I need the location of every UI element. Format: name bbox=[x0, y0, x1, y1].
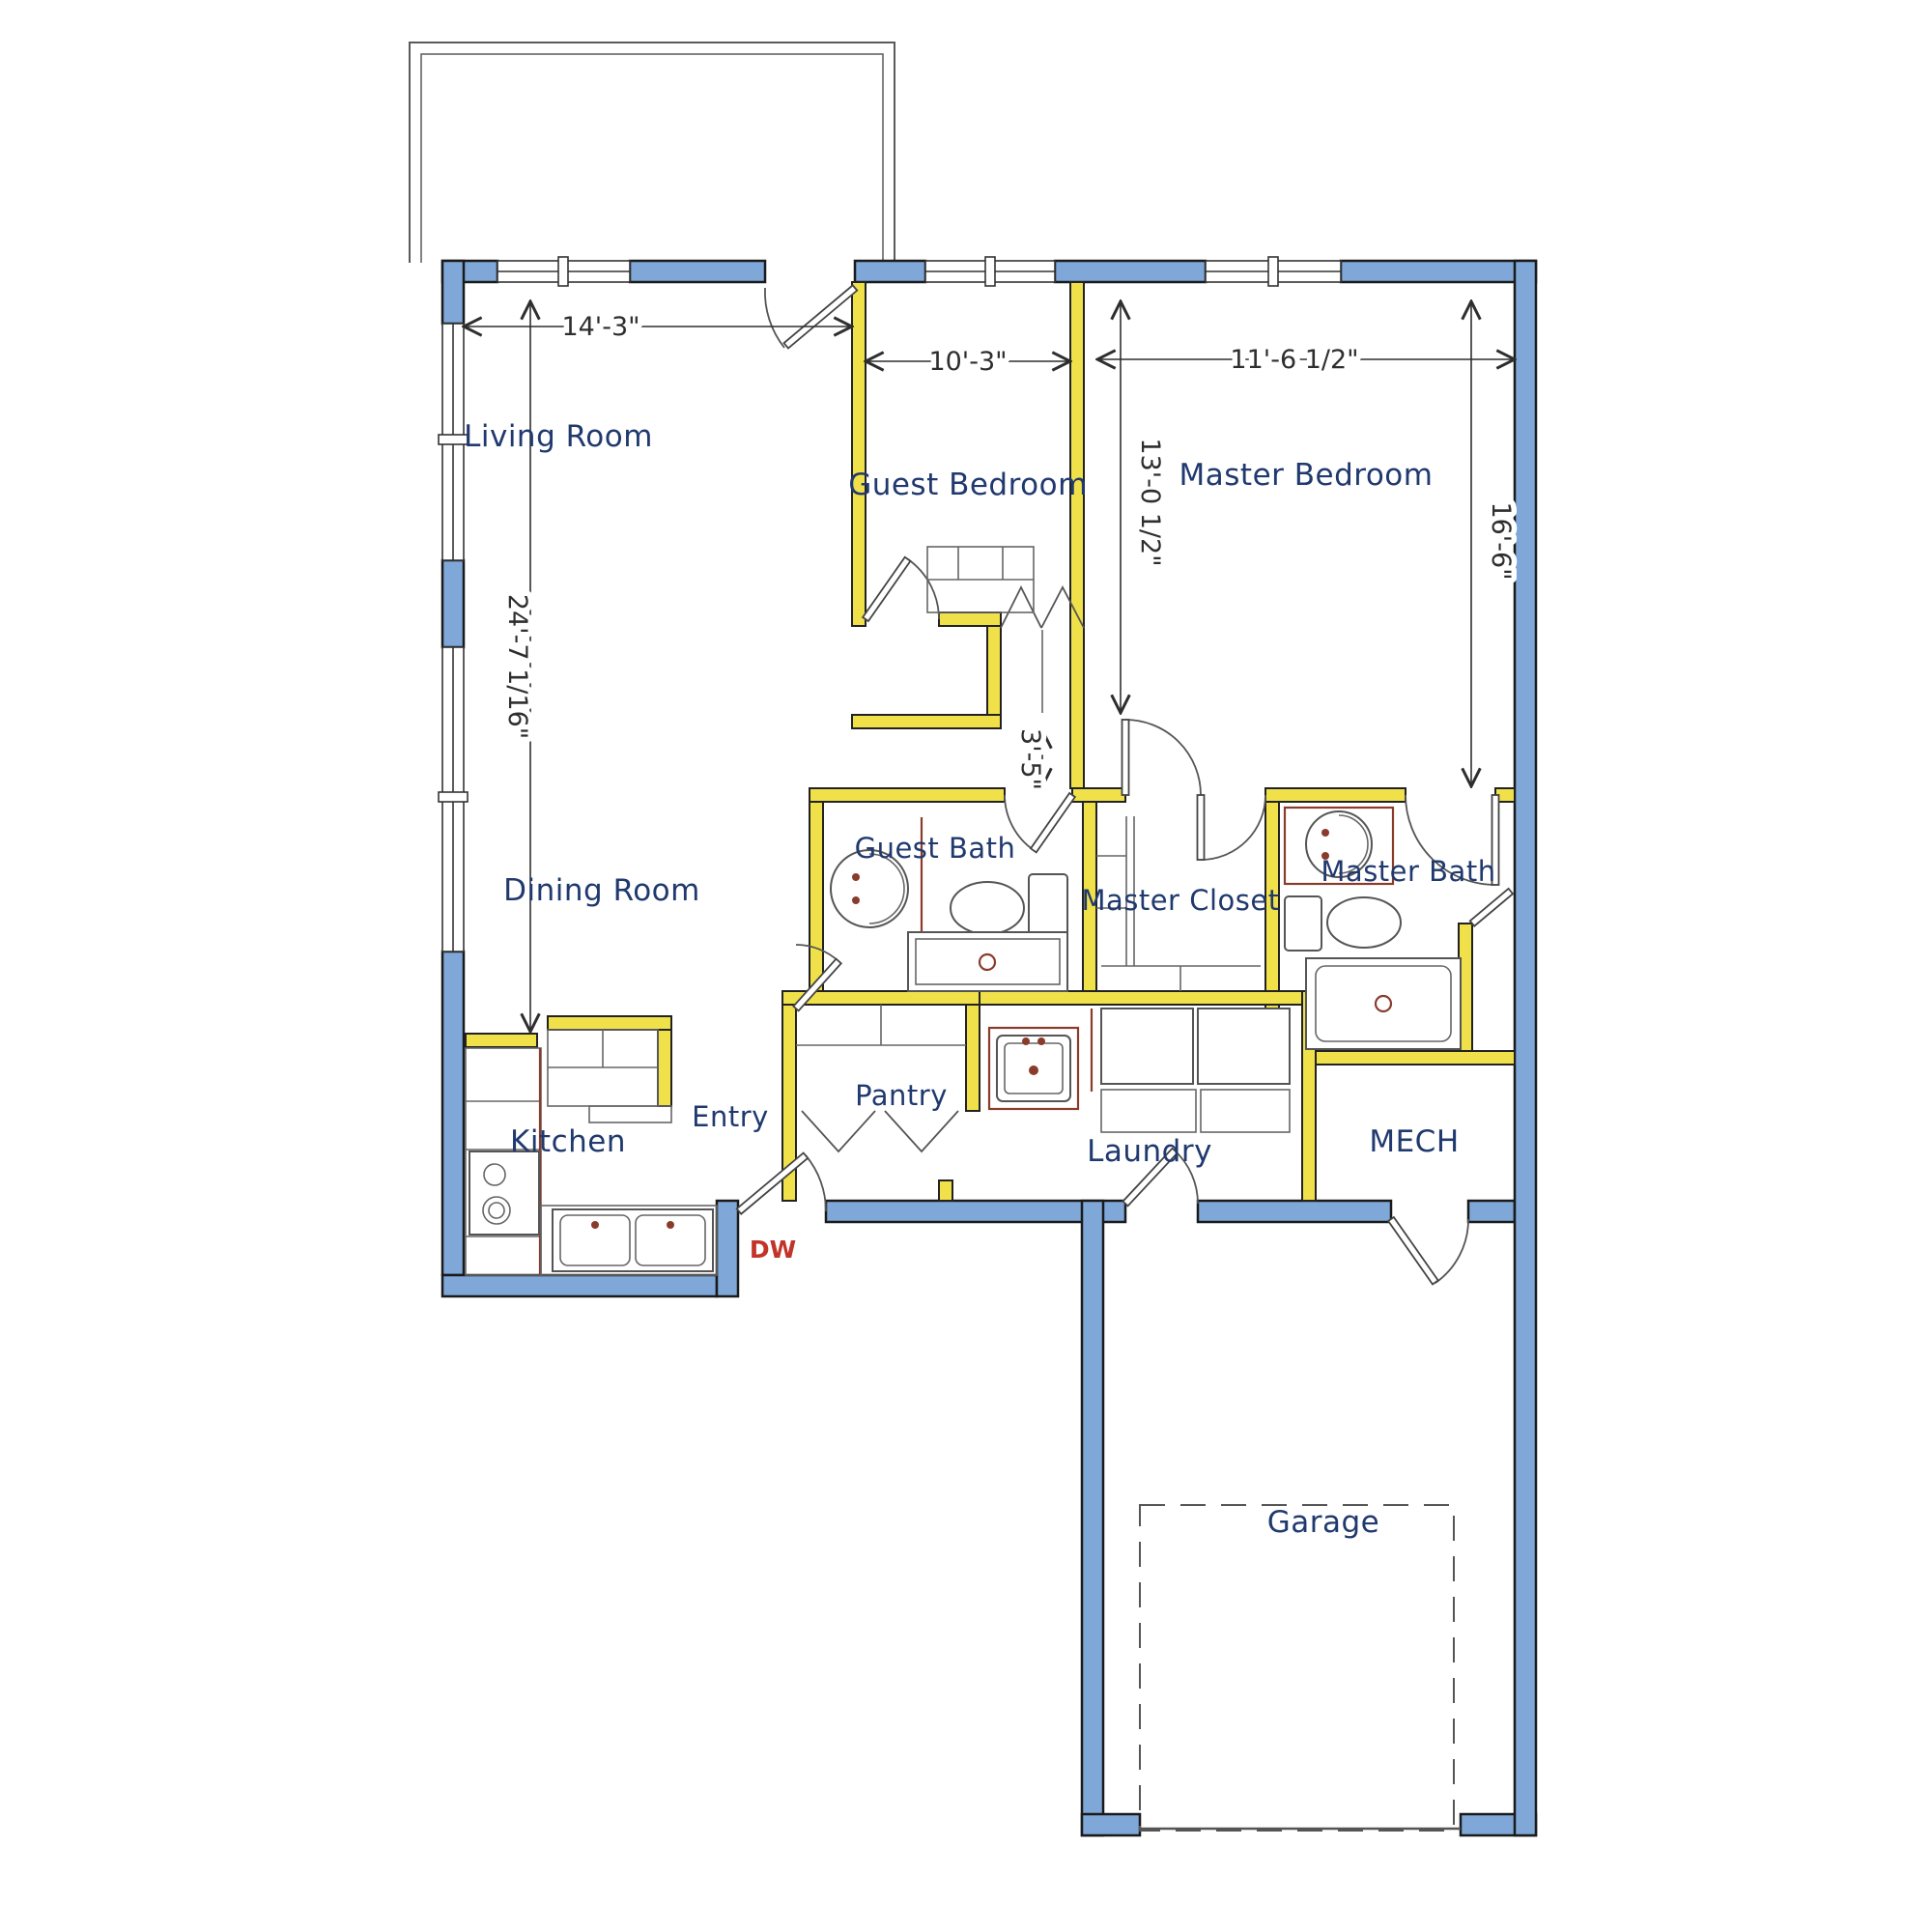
room-label-pantry: Pantry bbox=[855, 1079, 948, 1112]
svg-text:11'-6 1/2": 11'-6 1/2" bbox=[1230, 345, 1358, 375]
svg-text:13'-0 1/2": 13'-0 1/2" bbox=[1135, 438, 1165, 566]
stove-icon bbox=[469, 1151, 539, 1235]
floor-plan-page: 14'-3" 10'-3" 11'-6 1/2" 24'-7 1/16" 13'… bbox=[0, 0, 1932, 1932]
room-label-kitchen: Kitchen bbox=[510, 1124, 626, 1159]
window-guest-bedroom-icon bbox=[925, 257, 1055, 286]
linen-closet-door bbox=[1470, 889, 1513, 926]
dim-master-width: 11'-6 1/2" bbox=[1097, 345, 1515, 375]
svg-text:16'-6": 16'-6" bbox=[1486, 501, 1516, 580]
mech-garage-door bbox=[1388, 1217, 1468, 1285]
master-closet-door bbox=[1198, 795, 1266, 860]
master-bedroom-door bbox=[1122, 720, 1202, 795]
guest-vanity-icon bbox=[908, 932, 1067, 991]
dim-guest-width: 10'-3" bbox=[866, 347, 1070, 377]
room-label-laundry: Laundry bbox=[1087, 1134, 1212, 1169]
svg-text:3'-5": 3'-5" bbox=[1015, 728, 1045, 790]
window-west-dining-icon bbox=[439, 647, 468, 952]
svg-text:14'-3": 14'-3" bbox=[561, 312, 639, 342]
washer-icon bbox=[1101, 1009, 1193, 1084]
kitchen-sink-icon bbox=[553, 1209, 713, 1271]
room-label-master-closet: Master Closet bbox=[1081, 884, 1279, 917]
room-label-dining-room: Dining Room bbox=[503, 873, 700, 908]
window-living-room-icon bbox=[497, 257, 630, 286]
dim-guest-depth: 13'-0 1/2" bbox=[1121, 301, 1165, 713]
pantry-shelves bbox=[796, 1005, 966, 1045]
dishwasher-label: DW bbox=[750, 1236, 796, 1264]
room-label-master-bedroom: Master Bedroom bbox=[1179, 458, 1434, 493]
dim-master-depth: 16'-6" bbox=[1471, 301, 1516, 786]
guest-bedroom-dresser-icon bbox=[927, 547, 1034, 612]
room-label-guest-bedroom: Guest Bedroom bbox=[848, 468, 1088, 502]
floor-plan-drawing: 14'-3" 10'-3" 11'-6 1/2" 24'-7 1/16" 13'… bbox=[0, 0, 1932, 1932]
room-label-master-bath: Master Bath bbox=[1321, 855, 1495, 888]
dim-hall-width: 3'-5" bbox=[1015, 728, 1045, 790]
laundry-sink-icon bbox=[989, 1028, 1078, 1109]
front-door bbox=[765, 285, 857, 348]
dryer-icon bbox=[1198, 1009, 1290, 1084]
room-label-mech: MECH bbox=[1369, 1124, 1459, 1159]
pantry-double-doors bbox=[802, 1111, 958, 1151]
room-label-living-room: Living Room bbox=[464, 419, 653, 454]
side-entry-door bbox=[737, 1152, 826, 1213]
bathtub-icon bbox=[1306, 958, 1461, 1049]
room-label-entry: Entry bbox=[692, 1100, 769, 1133]
room-label-guest-bath: Guest Bath bbox=[855, 832, 1016, 865]
svg-text:10'-3": 10'-3" bbox=[928, 347, 1007, 377]
garage-stall-outline bbox=[1140, 1505, 1454, 1831]
kitchen-peninsula bbox=[548, 1030, 671, 1122]
master-toilet-icon bbox=[1285, 896, 1401, 951]
window-master-bedroom-icon bbox=[1206, 257, 1341, 286]
svg-text:24'-7 1/16": 24'-7 1/16" bbox=[502, 594, 532, 739]
porch-outline bbox=[410, 43, 895, 263]
room-label-garage: Garage bbox=[1267, 1505, 1380, 1540]
dim-west-side: 24'-7 1/16" bbox=[502, 301, 532, 1032]
